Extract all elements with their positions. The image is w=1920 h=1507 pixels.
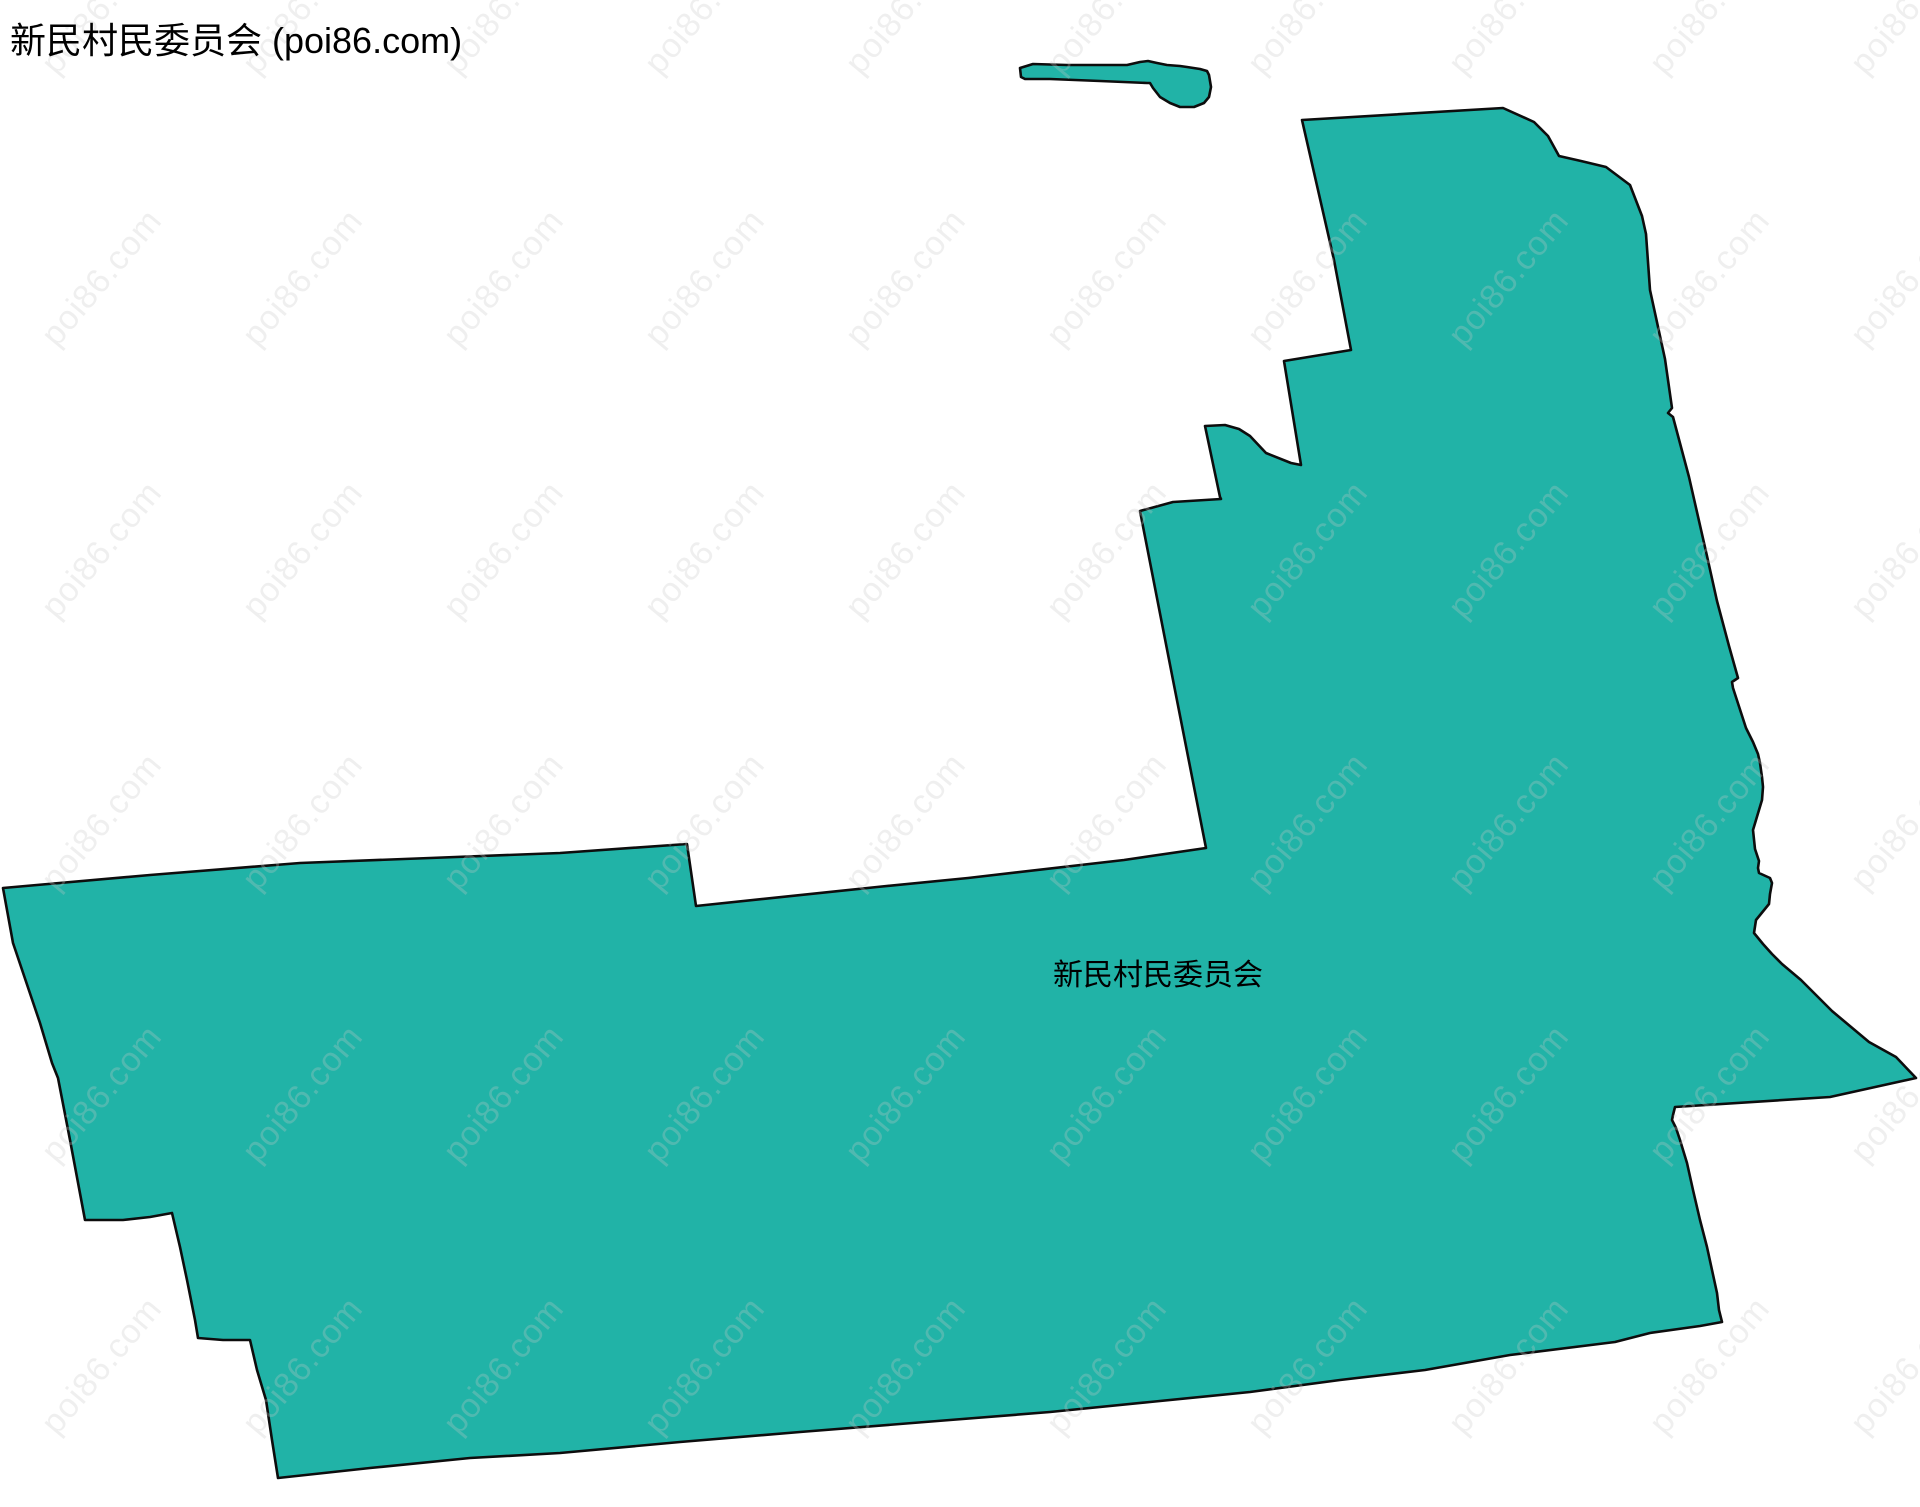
small-region-polygon xyxy=(1020,61,1211,107)
map-canvas: poi86.compoi86.compoi86.compoi86.compoi8… xyxy=(0,0,1920,1507)
region-map-svg xyxy=(0,0,1920,1507)
region-label: 新民村民委员会 xyxy=(1053,950,1263,994)
page-title: 新民村民委员会 (poi86.com) xyxy=(10,12,462,64)
main-region-polygon xyxy=(3,108,1916,1478)
